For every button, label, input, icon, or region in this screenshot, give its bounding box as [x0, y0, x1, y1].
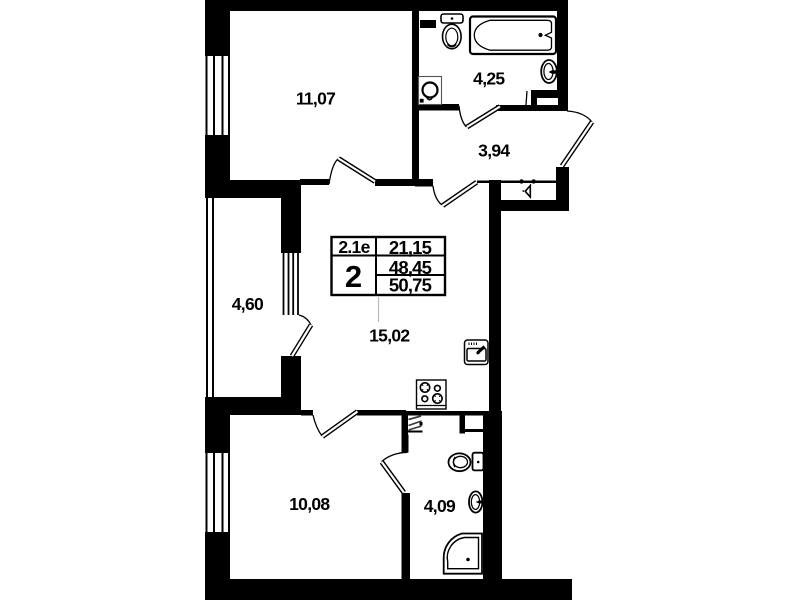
svg-text:10,08: 10,08: [289, 494, 330, 514]
svg-text:50,75: 50,75: [389, 275, 432, 296]
svg-text:4,25: 4,25: [473, 69, 505, 89]
svg-text:11,07: 11,07: [296, 89, 335, 109]
svg-text:15,02: 15,02: [369, 326, 410, 346]
svg-text:4,60: 4,60: [232, 294, 264, 314]
svg-text:21,15: 21,15: [389, 237, 432, 258]
svg-text:4,09: 4,09: [424, 496, 456, 516]
svg-text:2.1е: 2.1е: [338, 237, 370, 257]
svg-text:3,94: 3,94: [478, 141, 510, 161]
svg-text:2: 2: [345, 259, 362, 294]
